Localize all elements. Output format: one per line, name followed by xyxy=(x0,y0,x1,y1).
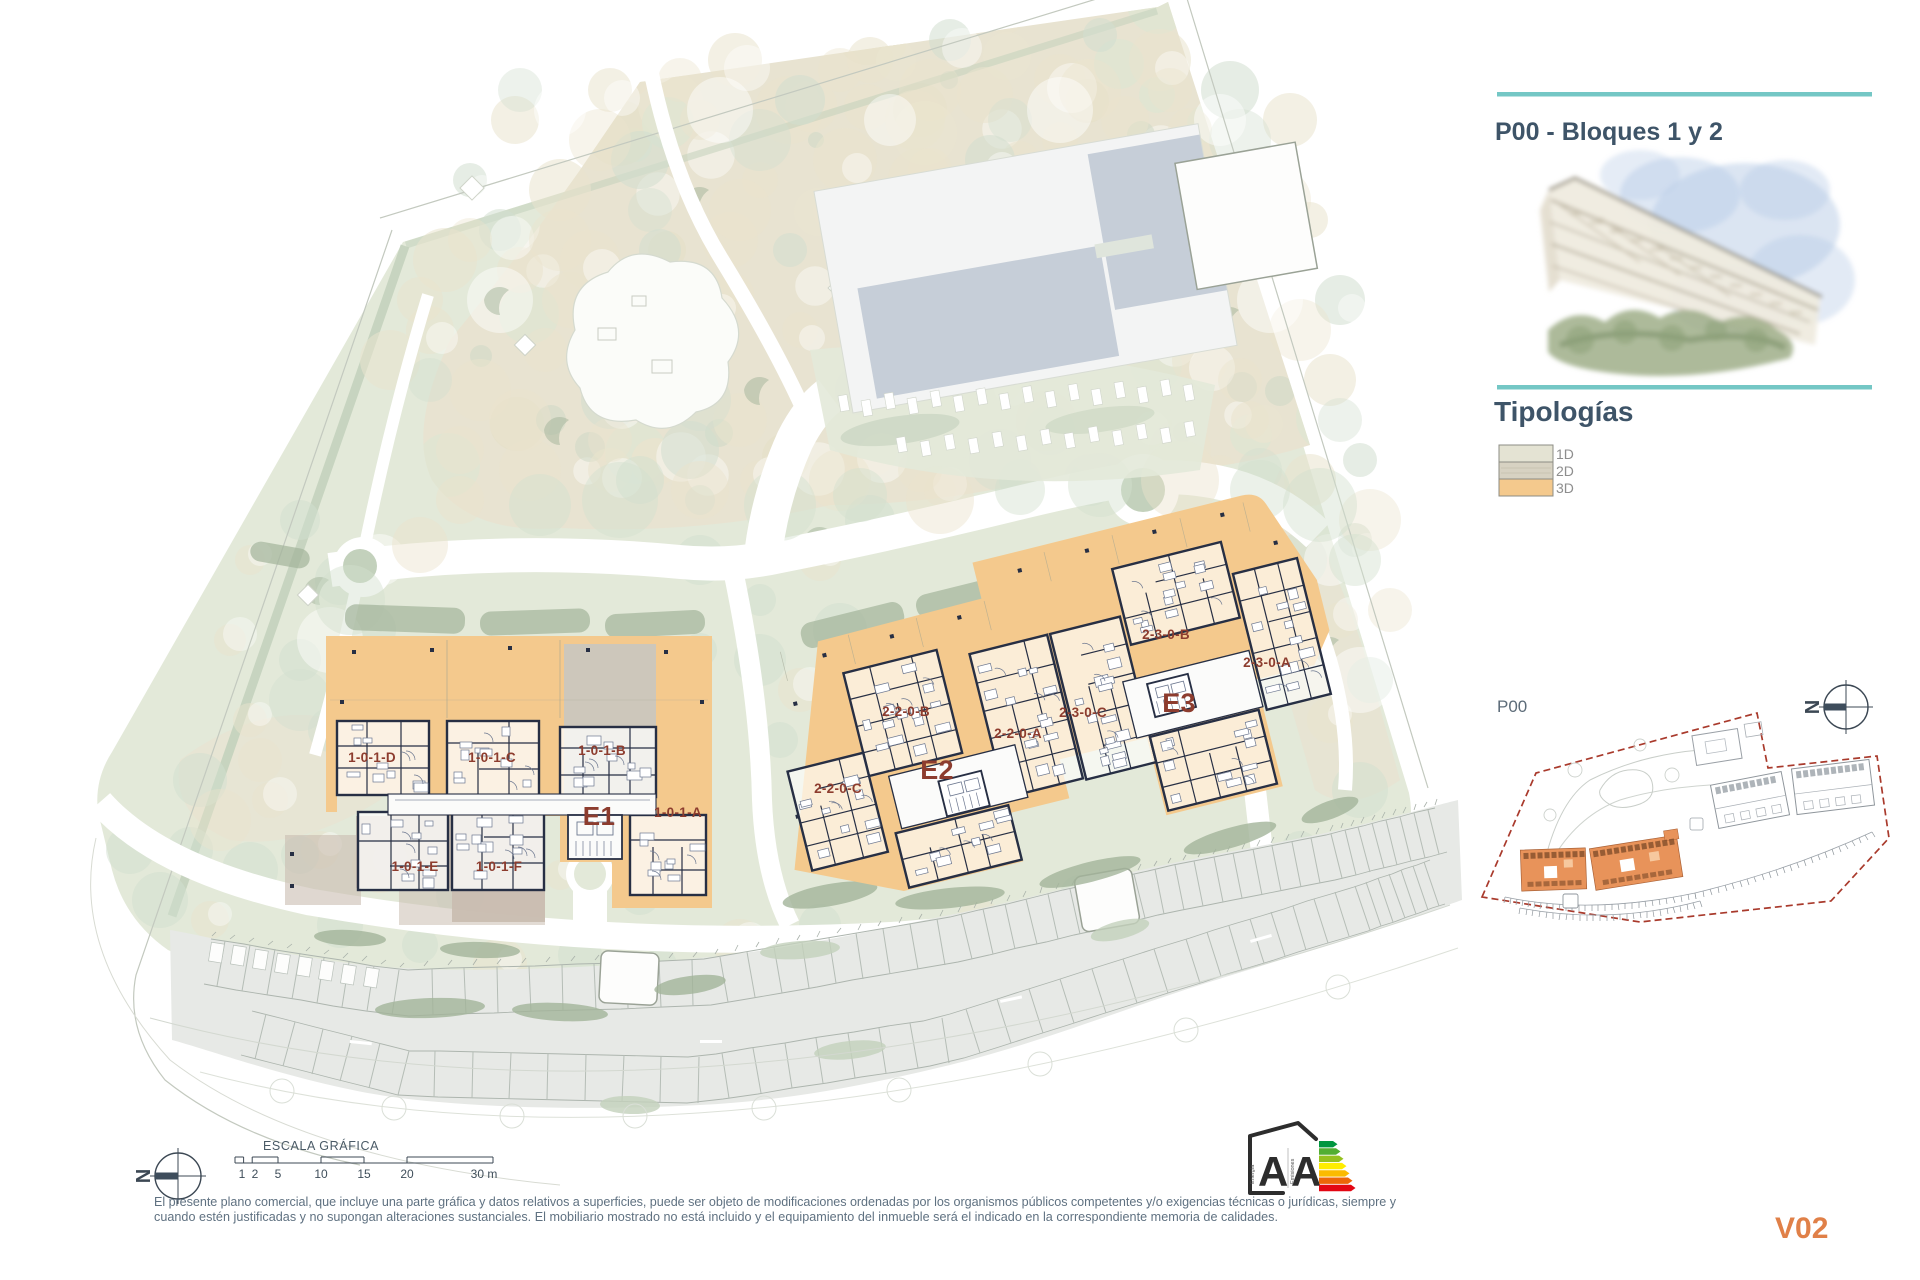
svg-text:N: N xyxy=(1802,700,1824,714)
svg-text:cuando estén justificadas y no: cuando estén justificadas y no supongan … xyxy=(154,1210,1278,1224)
svg-text:1D: 1D xyxy=(1556,446,1574,462)
svg-text:1-0-1-A: 1-0-1-A xyxy=(654,805,702,820)
svg-text:3D: 3D xyxy=(1556,480,1574,496)
svg-text:5: 5 xyxy=(275,1167,282,1181)
svg-text:10: 10 xyxy=(314,1167,328,1181)
svg-text:E2: E2 xyxy=(920,755,954,785)
svg-text:Tipologías: Tipologías xyxy=(1494,396,1634,427)
svg-text:2D: 2D xyxy=(1556,463,1574,479)
svg-text:Energía: Energía xyxy=(1250,1164,1256,1184)
svg-text:2-3-0-A: 2-3-0-A xyxy=(1243,655,1291,670)
svg-text:2-2-0-C: 2-2-0-C xyxy=(814,781,862,796)
svg-text:2-3-0-C: 2-3-0-C xyxy=(1059,705,1107,720)
svg-text:El presente plano comercial, q: El presente plano comercial, que incluye… xyxy=(154,1195,1397,1209)
svg-text:V02: V02 xyxy=(1775,1212,1828,1245)
svg-text:P00: P00 xyxy=(1497,697,1527,716)
svg-text:ESCALA GRÁFICA: ESCALA GRÁFICA xyxy=(263,1138,379,1153)
svg-text:Emisiones: Emisiones xyxy=(1290,1158,1296,1184)
svg-text:1: 1 xyxy=(239,1167,246,1181)
svg-text:E1: E1 xyxy=(583,801,615,831)
svg-text:2-2-0-B: 2-2-0-B xyxy=(882,704,930,719)
svg-text:15: 15 xyxy=(357,1167,371,1181)
svg-text:20: 20 xyxy=(400,1167,414,1181)
svg-text:1-0-1-E: 1-0-1-E xyxy=(391,859,438,874)
svg-text:P00 - Bloques 1 y 2: P00 - Bloques 1 y 2 xyxy=(1495,118,1723,146)
svg-text:E3: E3 xyxy=(1162,688,1196,718)
svg-text:2-2-0-A: 2-2-0-A xyxy=(994,726,1042,741)
svg-text:A: A xyxy=(1258,1148,1288,1195)
svg-text:1-0-1-C: 1-0-1-C xyxy=(468,750,516,765)
svg-text:2-3-0-B: 2-3-0-B xyxy=(1142,627,1190,642)
svg-text:1-0-1-B: 1-0-1-B xyxy=(578,743,626,758)
svg-text:N: N xyxy=(133,1169,155,1183)
svg-text:30 m: 30 m xyxy=(471,1167,498,1181)
svg-text:1-0-1-D: 1-0-1-D xyxy=(348,750,396,765)
svg-text:2: 2 xyxy=(252,1167,259,1181)
svg-text:1-0-1-F: 1-0-1-F xyxy=(476,859,522,874)
